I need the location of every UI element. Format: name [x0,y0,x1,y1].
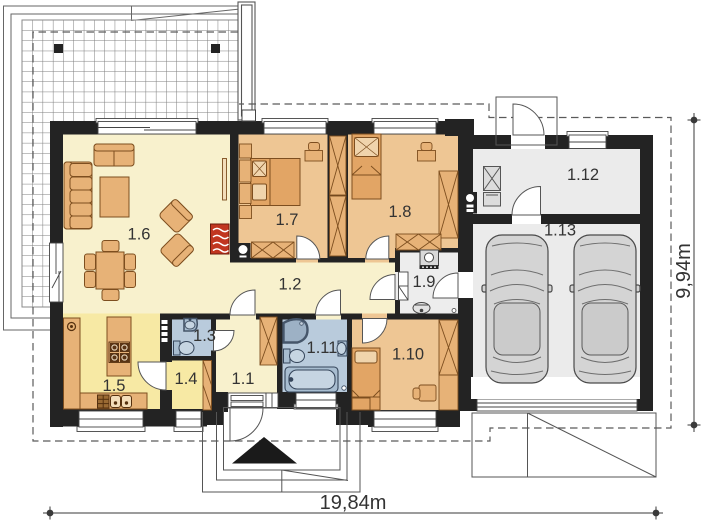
svg-text:1.1: 1.1 [232,370,255,388]
svg-text:1.4: 1.4 [175,370,198,388]
svg-text:1.6: 1.6 [128,226,151,244]
svg-text:1.3: 1.3 [193,327,216,345]
svg-text:1.10: 1.10 [392,346,424,364]
svg-text:1.5: 1.5 [103,377,126,395]
svg-text:1.11: 1.11 [307,339,338,357]
svg-text:1.12: 1.12 [567,166,599,184]
svg-text:1.9: 1.9 [413,273,436,291]
svg-text:9,94m: 9,94m [673,243,695,299]
svg-text:1.2: 1.2 [279,276,302,294]
svg-text:1.7: 1.7 [276,211,299,229]
svg-text:1.13: 1.13 [544,222,576,240]
svg-text:19,84m: 19,84m [320,492,387,514]
svg-text:1.8: 1.8 [389,203,412,221]
